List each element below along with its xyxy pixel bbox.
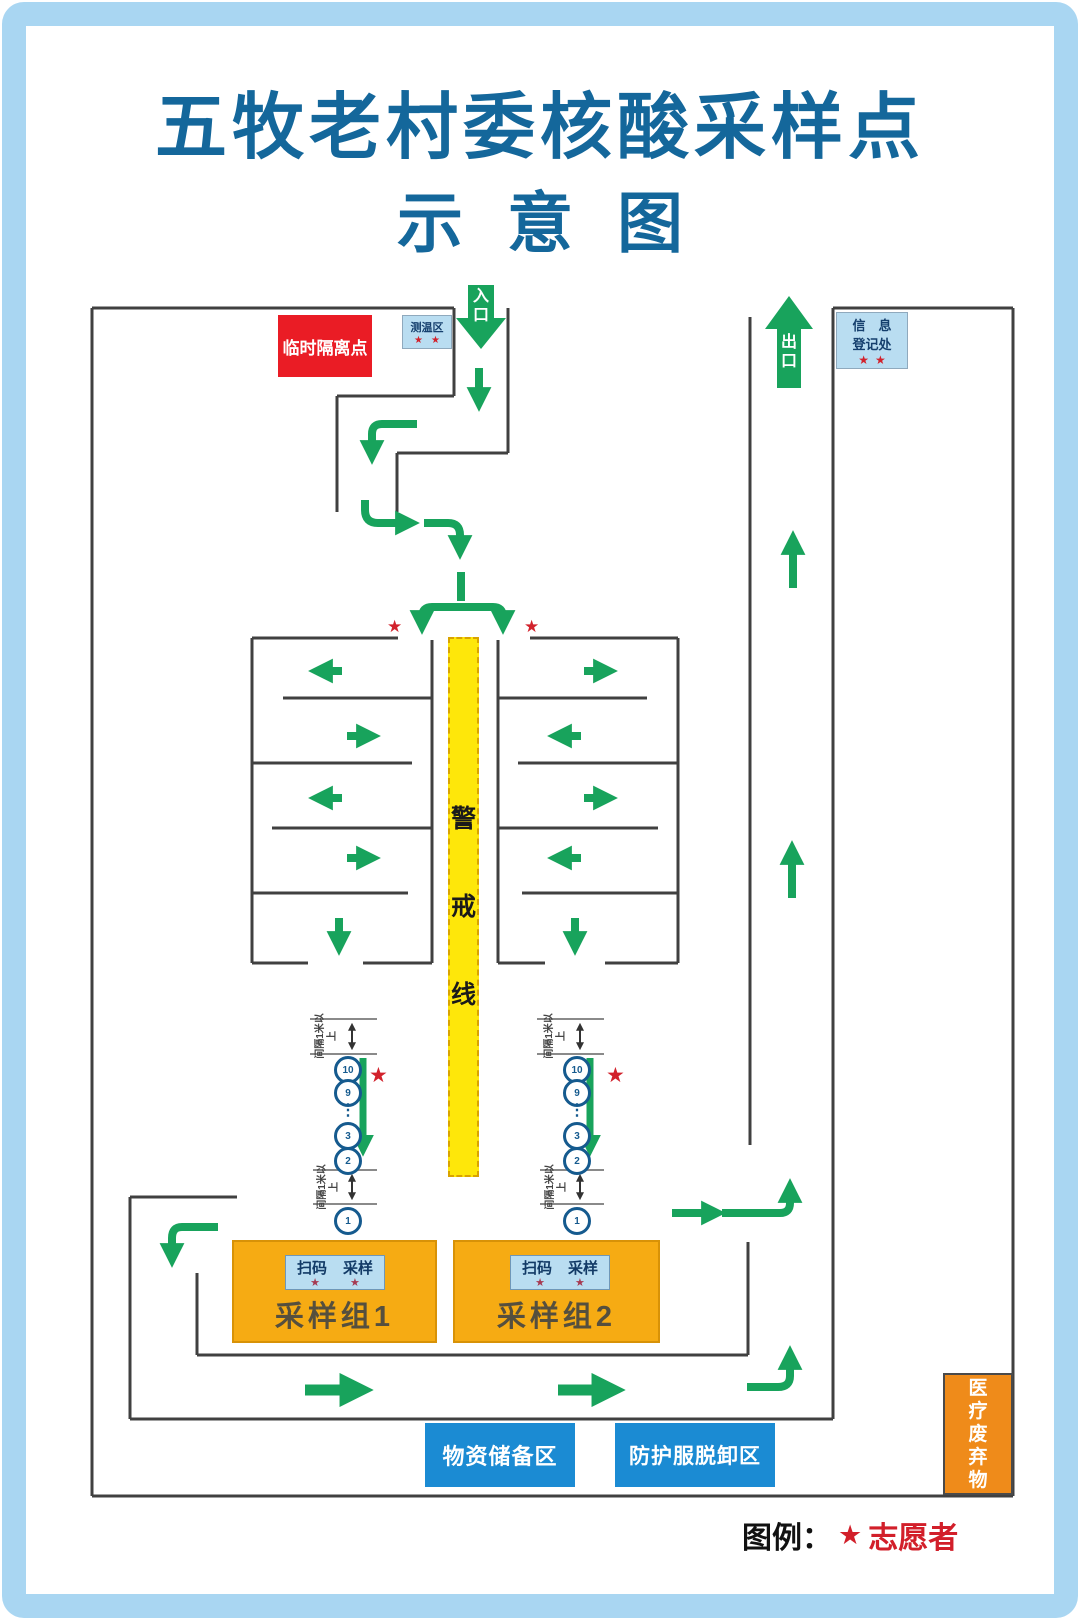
registration-box: 信 息 登记处 ★ ★ [836, 312, 908, 369]
medical-waste-label: 医疗废弃物 [967, 1377, 989, 1492]
temperature-zone-box: 测温区 ★ ★ [402, 315, 452, 349]
volunteer-star-icon: ★ [369, 1063, 388, 1088]
supplies-storage-label: 物资储备区 [442, 1439, 557, 1471]
volunteer-star-icon: ★ [350, 1276, 360, 1289]
volunteer-star-icon: ★ [310, 1276, 320, 1289]
scan-label: 扫码 [522, 1257, 552, 1278]
flow-arrows [172, 368, 793, 1390]
queue-ellipsis: ⋮ [569, 1100, 585, 1120]
spacing-label: 间隔1米以上 [545, 1163, 571, 1211]
sampling-group-1-label: 采样组1 [234, 1293, 435, 1335]
volunteer-star-icon: ★ [838, 1520, 862, 1551]
site-map-drawing [0, 0, 1080, 1620]
scan-label: 扫码 [297, 1257, 327, 1278]
legend: 图例： ★ 志愿者 [742, 1513, 958, 1557]
volunteer-star-icon: ★ [858, 353, 869, 367]
queue-position-3: 3 [563, 1122, 591, 1150]
cordon-line-label: 警戒线 [450, 775, 477, 1039]
exit-label: 出口 [780, 333, 798, 371]
volunteer-star-icon: ★ [535, 1276, 545, 1289]
sample-label: 采样 [343, 1257, 373, 1278]
registration-label-line2: 登记处 [852, 334, 891, 353]
medical-waste-box: 医疗废弃物 [943, 1373, 1013, 1495]
ppe-removal-box: 防护服脱卸区 [615, 1423, 775, 1487]
entrance-label: 入口 [472, 287, 490, 325]
scan-sample-station: 扫码 采样 ★ ★ [510, 1255, 610, 1290]
volunteer-star-icon: ★ [524, 617, 539, 637]
poster-page: 五牧老村委核酸采样点 示意图 [0, 0, 1080, 1620]
supplies-storage-box: 物资储备区 [425, 1423, 575, 1487]
sample-label: 采样 [568, 1257, 598, 1278]
sampling-group-1-box: 扫码 采样 ★ ★ 采样组1 [232, 1240, 437, 1343]
registration-label-line1: 信 息 [852, 315, 891, 334]
volunteer-star-icon: ★ [575, 1276, 585, 1289]
legend-title: 图例： [742, 1513, 832, 1557]
temperature-zone-label: 测温区 [411, 319, 444, 335]
ppe-removal-label: 防护服脱卸区 [629, 1440, 761, 1470]
spacing-label: 间隔1米以上 [317, 1163, 343, 1211]
sampling-group-2-box: 扫码 采样 ★ ★ 采样组2 [453, 1240, 660, 1343]
sampling-group-2-label: 采样组2 [455, 1293, 658, 1335]
scan-sample-station: 扫码 采样 ★ ★ [285, 1255, 385, 1290]
cordon-line-strip: 警戒线 [448, 637, 479, 1177]
spacing-label: 间隔1米以上 [544, 1012, 570, 1060]
queue-ellipsis: ⋮ [340, 1100, 356, 1120]
isolation-zone-label: 临时隔离点 [283, 334, 368, 359]
legend-volunteer-label: 志愿者 [868, 1513, 958, 1557]
queue-position-1: 1 [334, 1207, 362, 1235]
volunteer-star-icon: ★ [431, 335, 440, 346]
spacing-label: 间隔1米以上 [315, 1012, 341, 1060]
volunteer-star-icon: ★ [414, 335, 423, 346]
volunteer-star-icon: ★ [387, 617, 402, 637]
volunteer-star-icon: ★ [606, 1063, 625, 1088]
queue-position-1: 1 [563, 1207, 591, 1235]
volunteer-star-icon: ★ [875, 353, 886, 367]
isolation-zone-box: 临时隔离点 [278, 315, 372, 377]
queue-position-3: 3 [334, 1122, 362, 1150]
